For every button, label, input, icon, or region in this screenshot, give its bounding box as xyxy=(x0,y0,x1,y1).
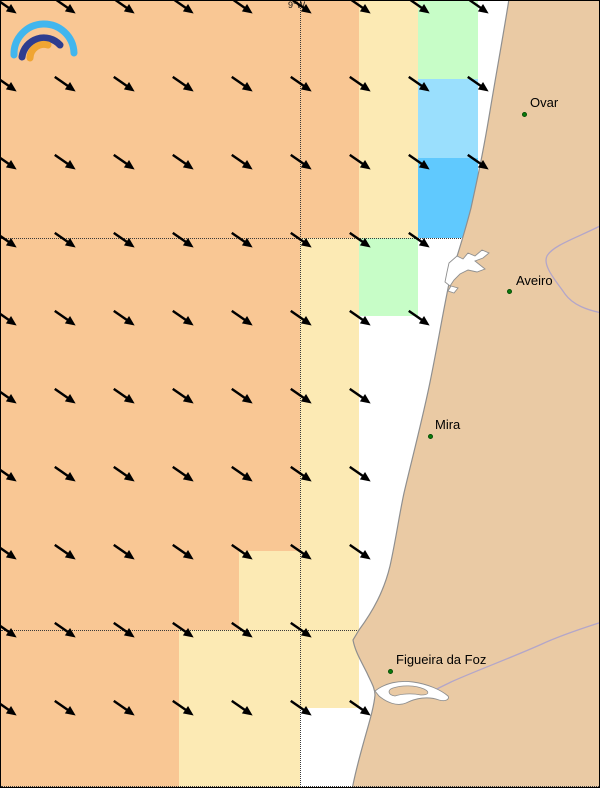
rainbow-arcs-logo[interactable] xyxy=(6,7,86,65)
parallel-gridline xyxy=(1,786,600,787)
land-layer xyxy=(1,1,600,788)
city-dot[interactable] xyxy=(428,434,433,439)
city-label[interactable]: Ovar xyxy=(530,95,558,110)
city-label[interactable]: Aveiro xyxy=(516,273,553,288)
city-label[interactable]: Mira xyxy=(435,417,460,432)
logo-inner-arc xyxy=(30,44,48,58)
city-dot[interactable] xyxy=(507,289,512,294)
map-canvas[interactable]: 9°W OvarAveiroMiraFigueira da Foz xyxy=(0,0,600,788)
city-label[interactable]: Figueira da Foz xyxy=(396,652,486,667)
city-dot[interactable] xyxy=(388,669,393,674)
city-dot[interactable] xyxy=(522,112,527,117)
